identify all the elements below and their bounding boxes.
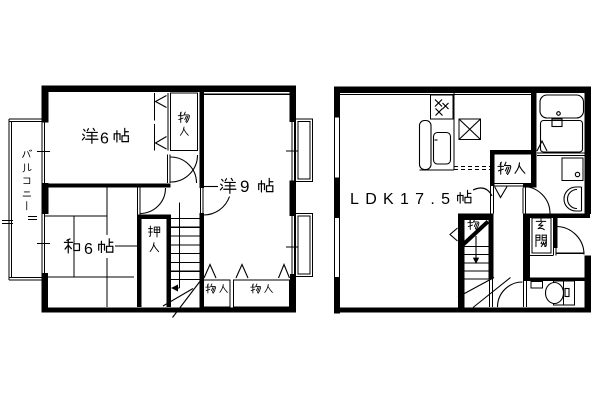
svg-text:6: 6	[84, 241, 93, 258]
svg-text:9: 9	[240, 177, 249, 196]
svg-text:6: 6	[100, 131, 109, 148]
svg-text:LDK17.5: LDK17.5	[350, 191, 450, 208]
